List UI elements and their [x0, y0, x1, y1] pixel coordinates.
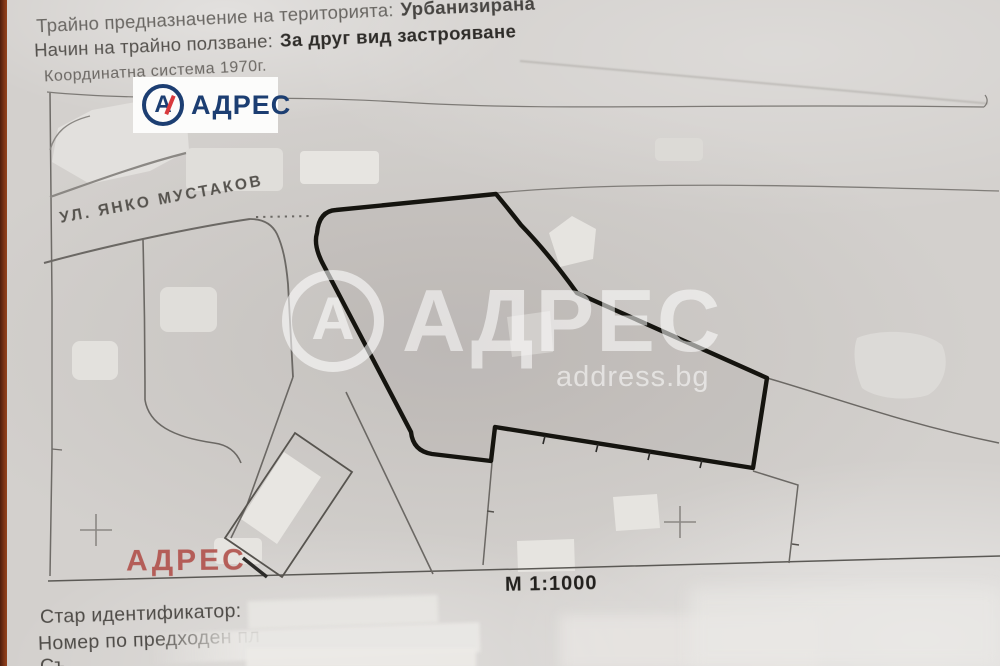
- lower-parcel-left-edge: [483, 463, 492, 565]
- street-lower-line: [44, 219, 250, 263]
- logo-monogram-circle: А: [142, 84, 184, 126]
- survey-crosses: [80, 506, 696, 546]
- watermark: А АДРЕС: [282, 270, 722, 372]
- scale-label: М 1:1000: [505, 572, 598, 597]
- survey-cross-left: [80, 514, 112, 546]
- watermark-brand-text: АДРЕС: [402, 277, 722, 365]
- parcel-line-northeast: [496, 185, 999, 193]
- survey-cross-right: [664, 506, 696, 538]
- agency-stamp-text: АДРЕС: [126, 543, 247, 578]
- watermark-monogram-circle: А: [282, 270, 384, 372]
- watermark-monogram-letter: А: [311, 289, 354, 349]
- parcel-line-vertical: [143, 240, 145, 400]
- frame-left-tick: [52, 449, 62, 450]
- agency-logo: А АДРЕС: [133, 77, 278, 133]
- lower-parcel-right-edge: [753, 471, 798, 563]
- footer-clipped-line: Съ: [40, 655, 67, 666]
- scanned-cadastral-sketch: Трайно предназначение на територията:Урб…: [0, 0, 1000, 666]
- frame-left-border: [50, 93, 52, 576]
- watermark-domain-text: address.bg: [556, 361, 710, 394]
- erasure-patch: [246, 648, 476, 666]
- logo-brand-text: АДРЕС: [191, 90, 291, 121]
- parcel-line-arc: [145, 400, 241, 463]
- frame-top-border-hook: [984, 95, 987, 107]
- erasure-patch: [690, 588, 1000, 666]
- street-dotted-line: [256, 216, 312, 217]
